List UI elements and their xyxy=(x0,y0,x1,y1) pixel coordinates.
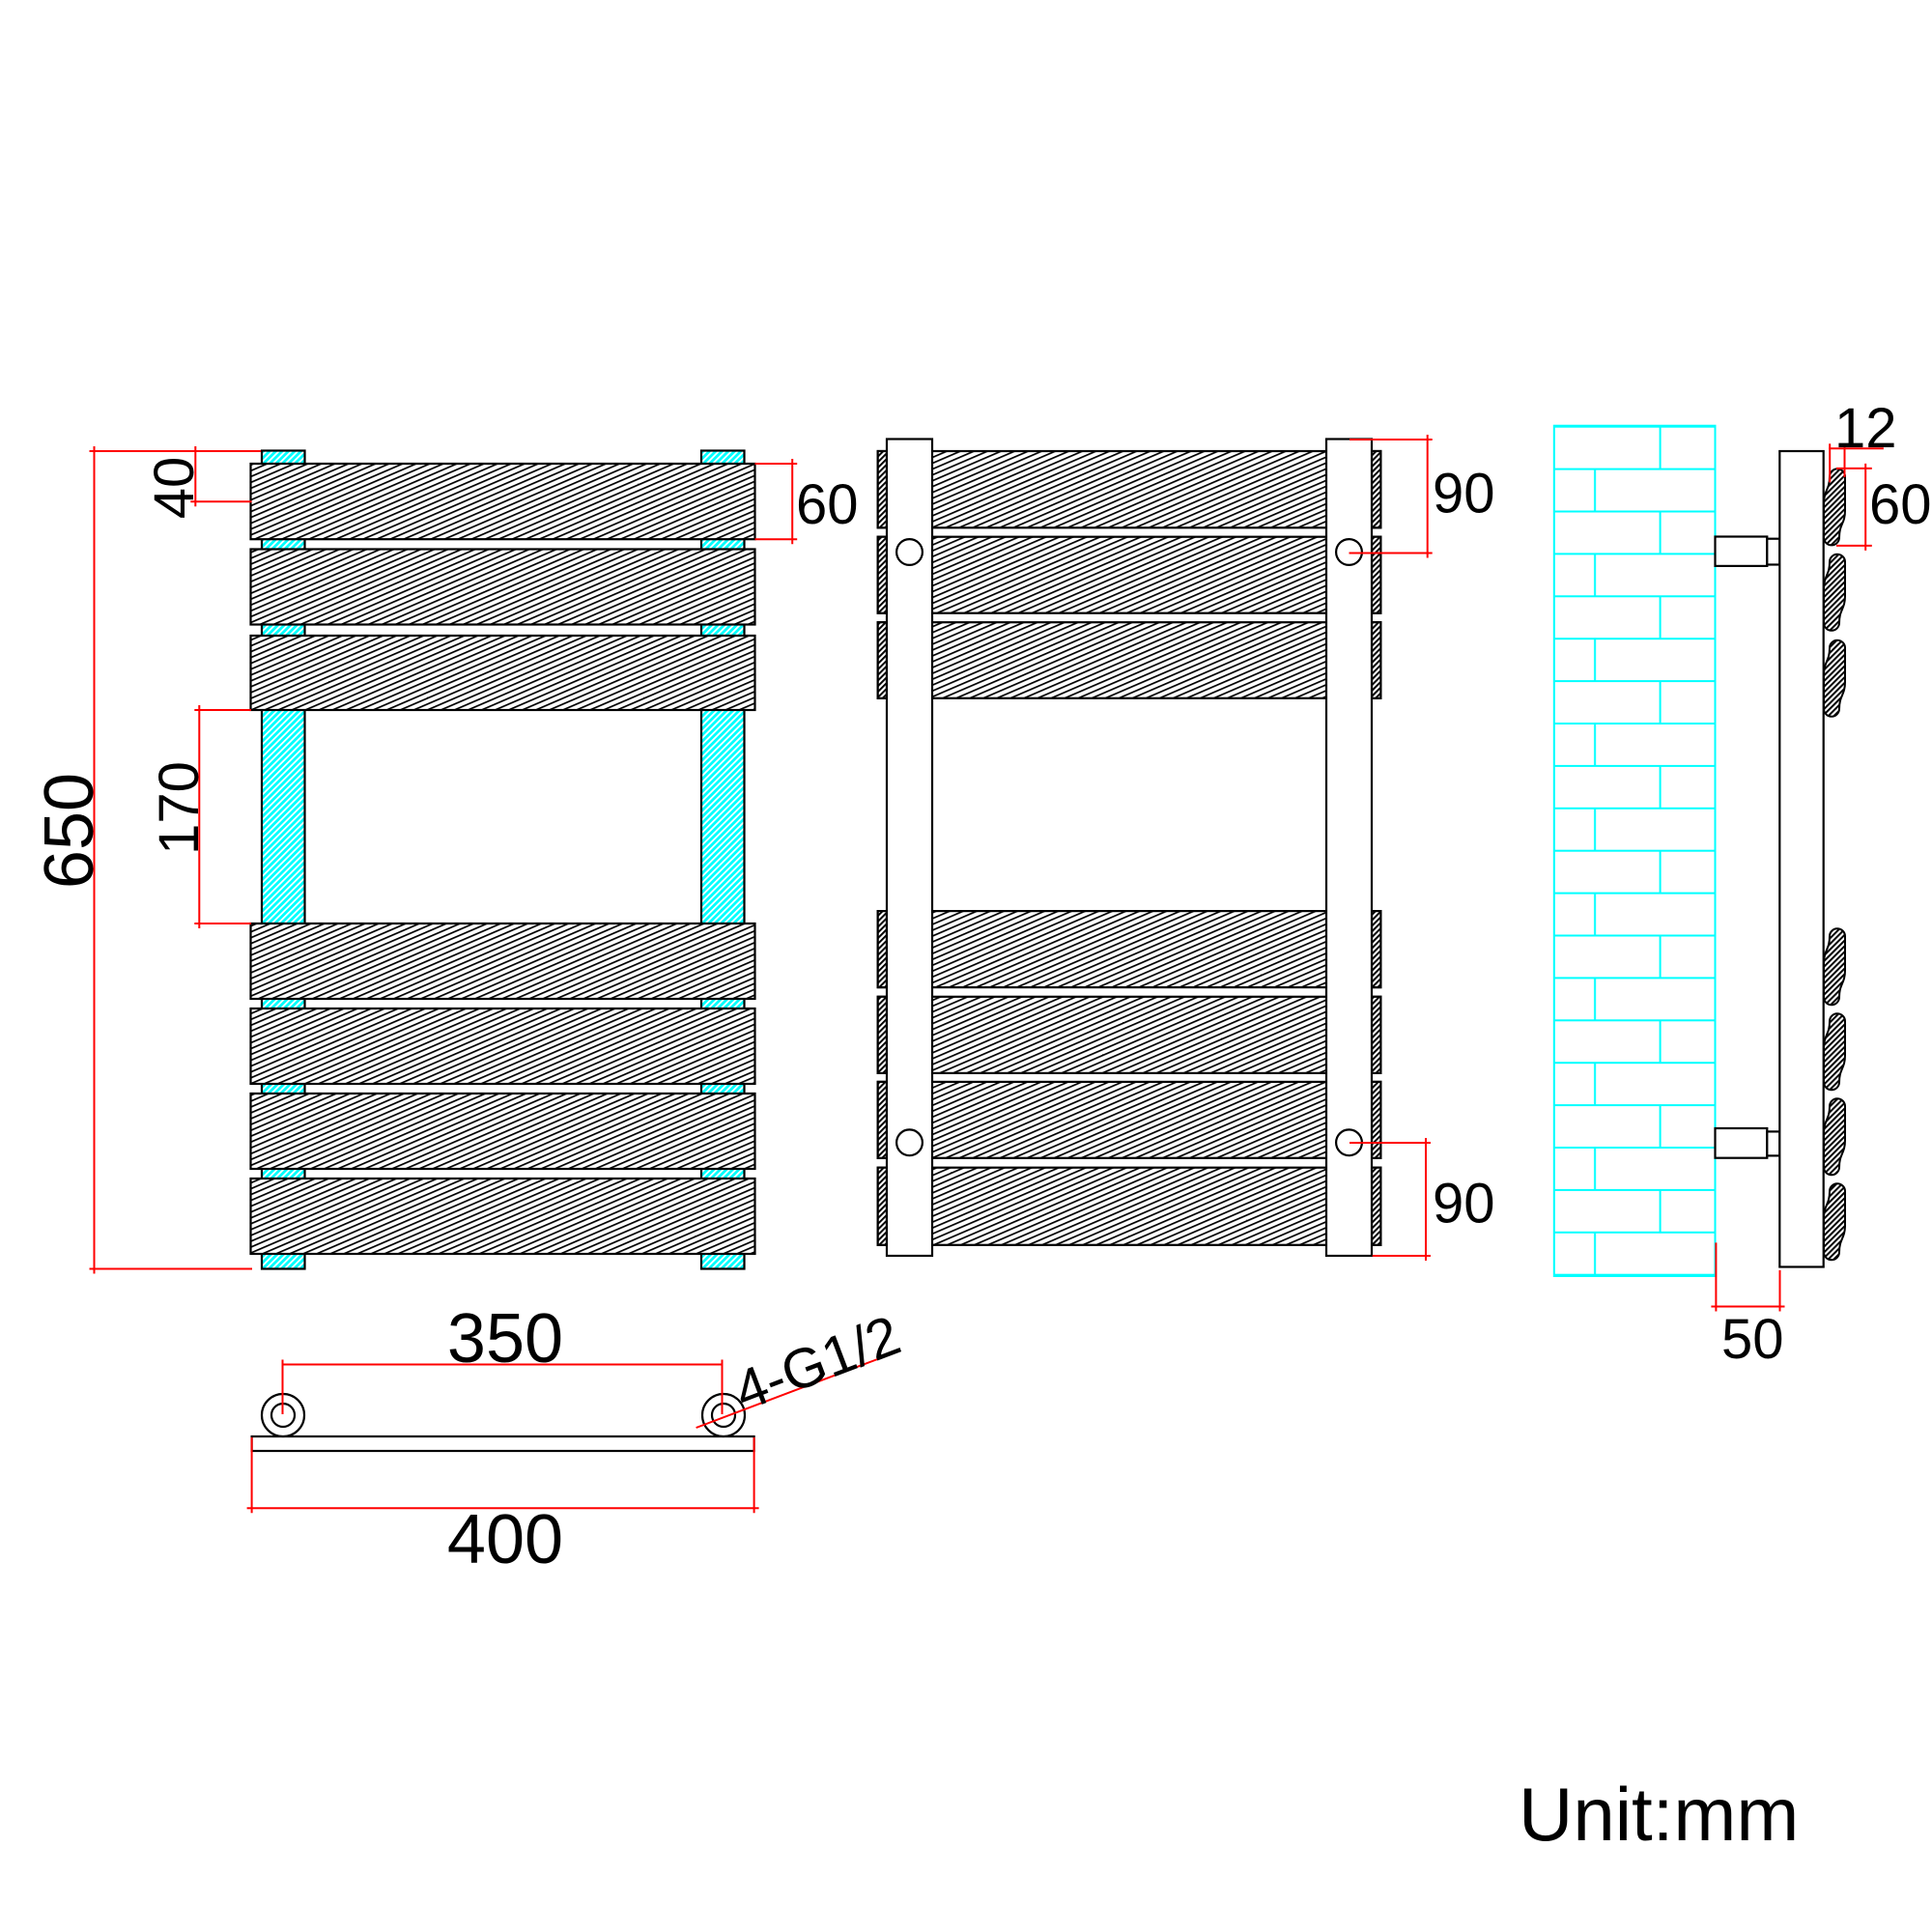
svg-text:170: 170 xyxy=(148,761,211,855)
svg-text:400: 400 xyxy=(447,1501,563,1578)
svg-text:350: 350 xyxy=(447,1300,563,1378)
svg-text:40: 40 xyxy=(143,457,206,520)
svg-text:650: 650 xyxy=(31,773,108,889)
svg-text:60: 60 xyxy=(1869,473,1932,536)
svg-text:60: 60 xyxy=(796,473,859,536)
svg-text:Unit:mm: Unit:mm xyxy=(1519,1772,1799,1857)
svg-text:12: 12 xyxy=(1834,397,1897,460)
svg-text:90: 90 xyxy=(1433,463,1495,526)
svg-text:50: 50 xyxy=(1721,1308,1784,1371)
svg-text:4-G1/2: 4-G1/2 xyxy=(726,1303,909,1423)
svg-text:90: 90 xyxy=(1433,1173,1495,1236)
